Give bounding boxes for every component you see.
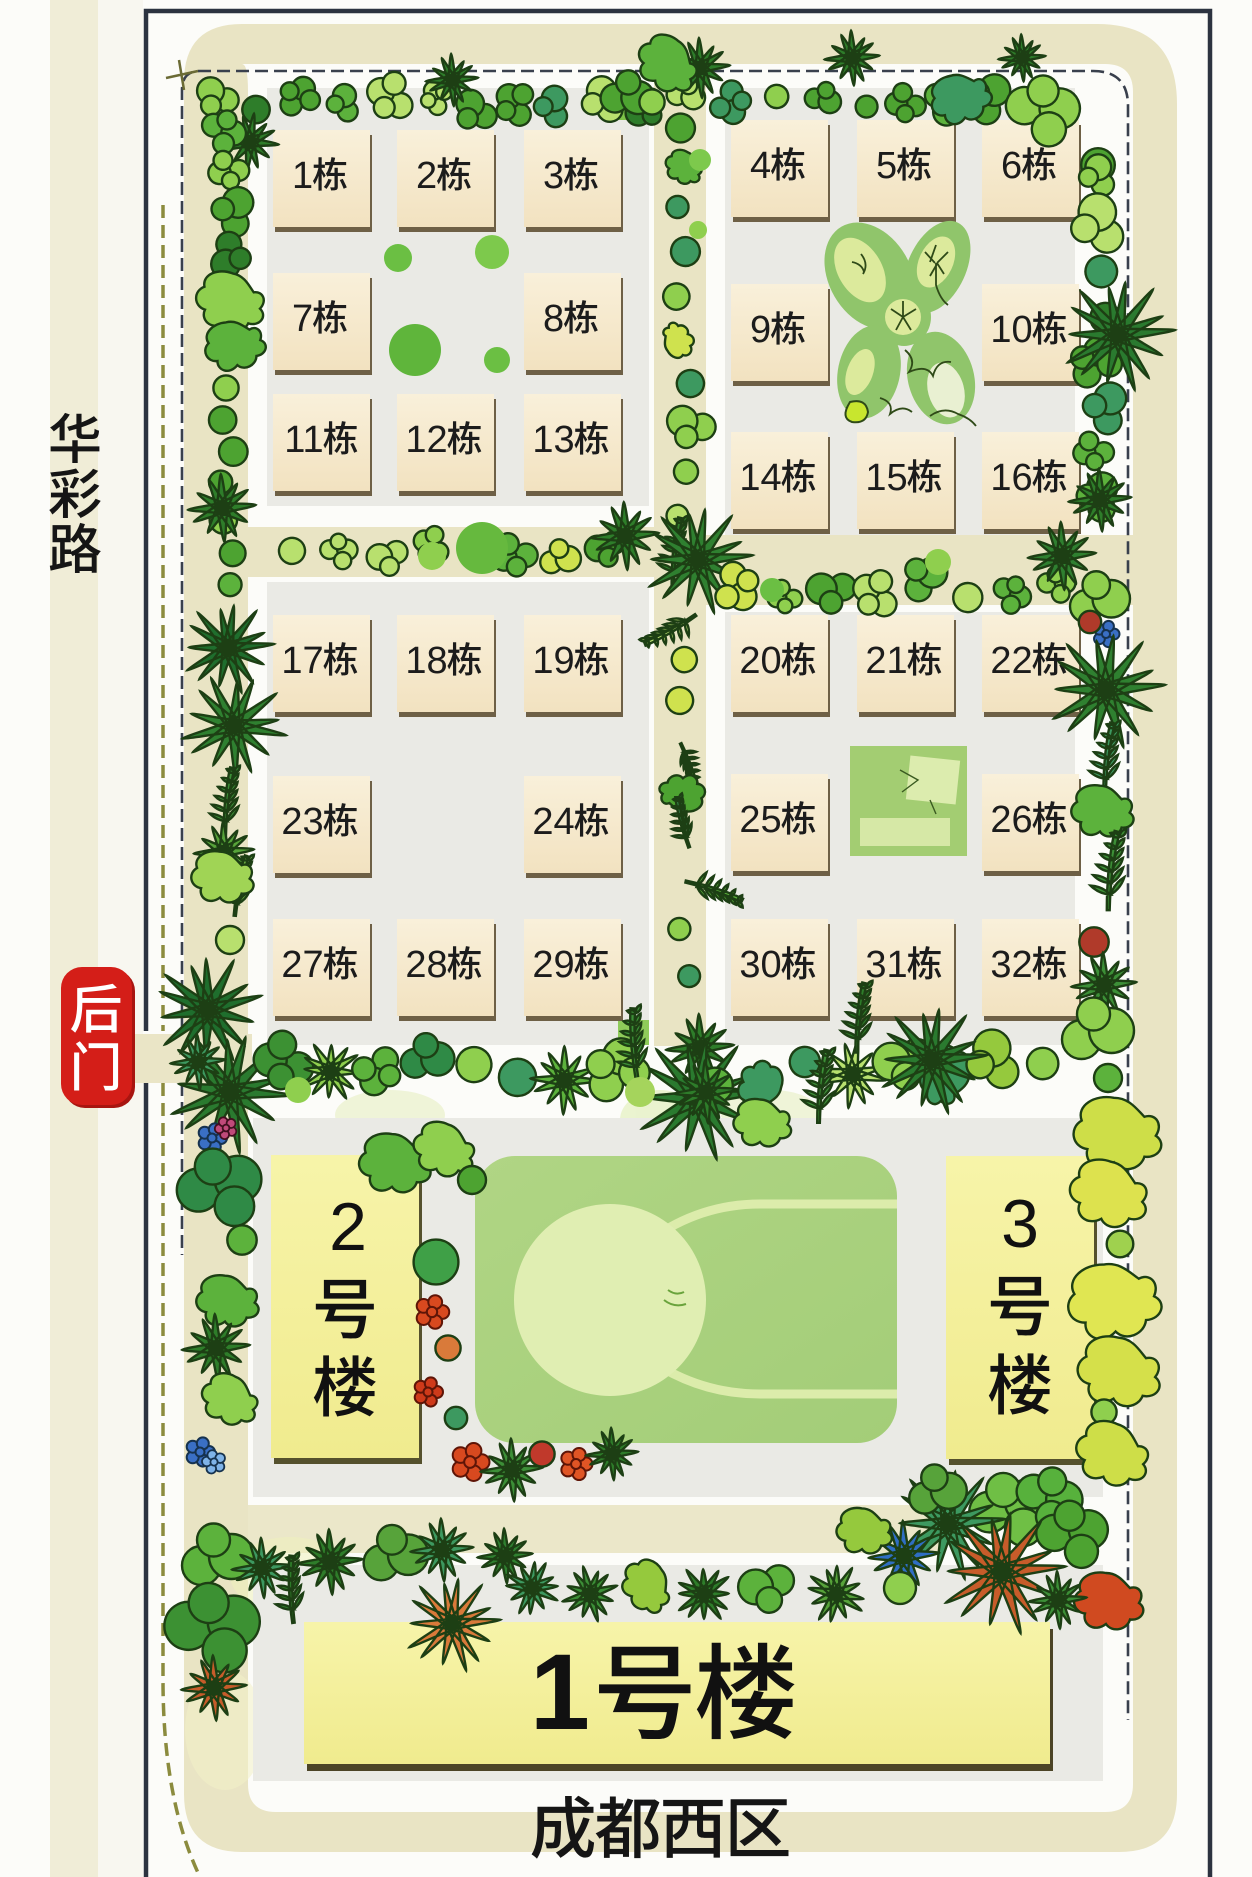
svg-text:21: 21 (865, 640, 907, 682)
svg-text:27: 27 (281, 944, 323, 986)
svg-text:3: 3 (543, 155, 564, 197)
svg-text:30: 30 (739, 944, 781, 986)
svg-text:20: 20 (739, 640, 781, 682)
svg-text:10: 10 (990, 309, 1032, 351)
svg-text:5: 5 (876, 145, 897, 187)
svg-text:19: 19 (532, 640, 574, 682)
svg-text:25: 25 (739, 799, 781, 841)
svg-text:7: 7 (292, 298, 313, 340)
svg-text:15: 15 (865, 457, 907, 499)
svg-text:24: 24 (532, 801, 574, 843)
svg-text:22: 22 (990, 640, 1032, 682)
svg-text:29: 29 (532, 944, 574, 986)
svg-text:3: 3 (1001, 1186, 1039, 1262)
svg-text:13: 13 (532, 419, 574, 461)
svg-text:2: 2 (416, 155, 437, 197)
svg-text:2: 2 (329, 1189, 367, 1265)
svg-text:14: 14 (739, 457, 781, 499)
svg-text:17: 17 (281, 640, 323, 682)
svg-text:4: 4 (750, 145, 771, 187)
svg-text:9: 9 (750, 309, 771, 351)
svg-text:16: 16 (990, 457, 1032, 499)
svg-text:18: 18 (405, 640, 447, 682)
svg-text:1: 1 (530, 1631, 590, 1752)
svg-text:8: 8 (543, 298, 564, 340)
svg-text:1: 1 (292, 155, 313, 197)
svg-text:26: 26 (990, 799, 1032, 841)
svg-text:11: 11 (284, 419, 323, 461)
svg-text:28: 28 (405, 944, 447, 986)
svg-text:6: 6 (1001, 145, 1022, 187)
svg-text:32: 32 (990, 944, 1032, 986)
svg-text:12: 12 (405, 419, 447, 461)
svg-text:23: 23 (281, 801, 323, 843)
